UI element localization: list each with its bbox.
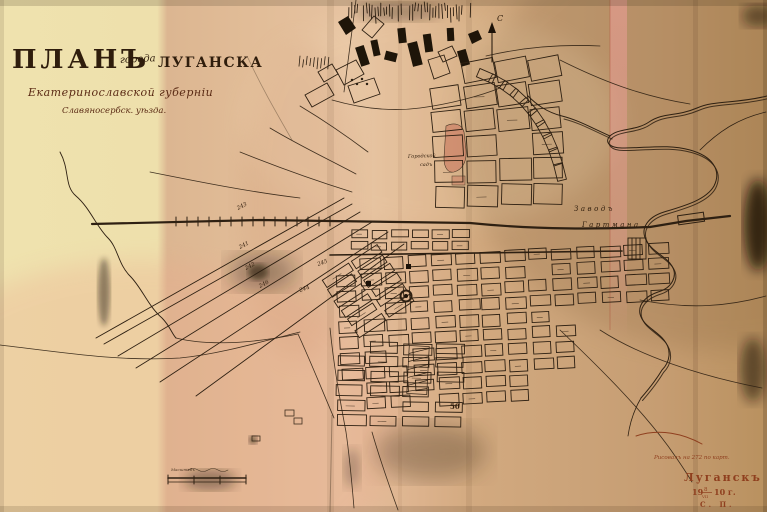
hatch-stroke: [369, 4, 370, 16]
signature-year-suffix: 10 г.: [714, 487, 736, 497]
signature-city: Луганскъ: [684, 471, 762, 484]
signature-month: VII: [701, 494, 708, 499]
signature-note: Рисовалъ на 272 по карт.: [653, 455, 730, 461]
hatch-stroke: [461, 6, 462, 15]
landmark-building: [366, 281, 371, 286]
map-title-word2: города: [120, 53, 156, 66]
hatch-stroke: [450, 8, 451, 22]
park-label-line2: садъ: [420, 162, 433, 168]
scale-caption: Масштабъ: [170, 467, 195, 472]
hatch-stroke: [378, 7, 379, 16]
map-district: Славяносербск. уѣзда.: [62, 105, 166, 116]
factory-label-line1: Заводъ: [574, 205, 615, 213]
historical-map: ПЛАНЪ города ЛУГАНСКА Екатеринославской …: [0, 0, 767, 512]
hatch-stroke: [435, 6, 436, 17]
north-label: С: [497, 14, 503, 23]
signature-fraction-bar: [702, 492, 712, 493]
factory-label-line2: Гартмана: [581, 221, 641, 229]
park-label-line1: Городской: [407, 153, 436, 160]
landmark-building: [406, 264, 411, 269]
map-canvas: ПЛАНЪ города ЛУГАНСКА Екатеринославской …: [0, 0, 767, 512]
hatch-stroke: [371, 5, 372, 18]
signature-initials: С. П.: [700, 500, 735, 509]
map-subtitle: Екатеринославской губернiи: [27, 86, 213, 99]
map-title-word3: ЛУГАНСКА: [158, 55, 263, 71]
block-label-50: 50: [450, 402, 460, 411]
